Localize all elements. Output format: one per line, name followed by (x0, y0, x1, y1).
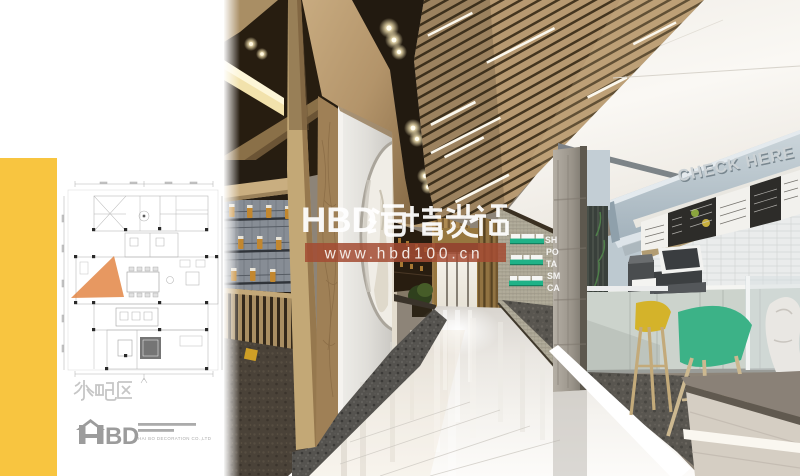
svg-text:HAI BO DECORATION CO.,LTD: HAI BO DECORATION CO.,LTD (138, 436, 211, 441)
svg-text:SM: SM (547, 271, 560, 281)
svg-text:PO: PO (546, 247, 559, 257)
svg-text:HBD: HBD (301, 201, 377, 240)
svg-text:www.hbd100.cn: www.hbd100.cn (324, 246, 484, 263)
svg-text:BD: BD (105, 423, 139, 450)
svg-text:CA: CA (547, 283, 560, 293)
svg-text:SH: SH (545, 235, 557, 245)
svg-text:TA: TA (546, 259, 558, 269)
